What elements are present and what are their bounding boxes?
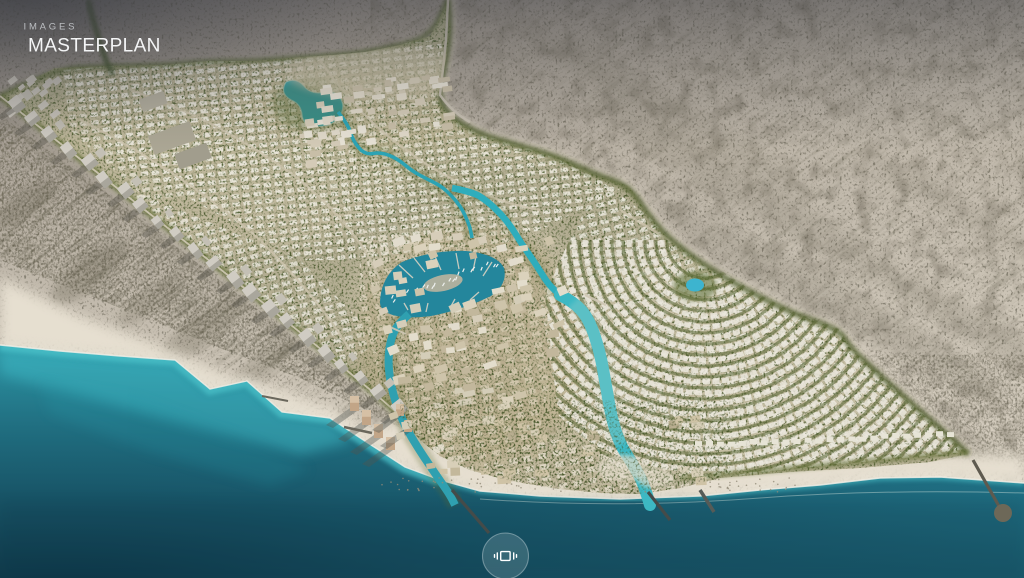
svg-text:IMAGES: IMAGES: [24, 22, 78, 33]
svg-text:MASTERPLAN: MASTERPLAN: [28, 36, 161, 57]
